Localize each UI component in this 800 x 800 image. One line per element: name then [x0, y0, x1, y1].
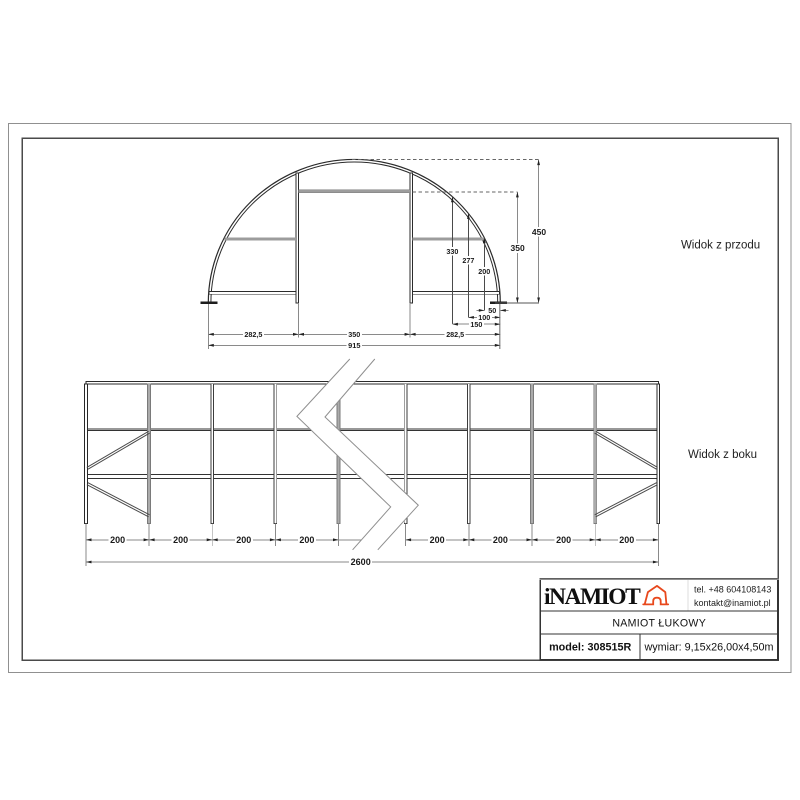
svg-text:282,5: 282,5 — [244, 330, 262, 339]
svg-text:200: 200 — [430, 535, 445, 545]
svg-text:2600: 2600 — [351, 557, 371, 567]
svg-text:tel. +48 604108143: tel. +48 604108143 — [694, 585, 771, 595]
svg-text:Widok z przodu: Widok z przodu — [681, 240, 760, 252]
svg-text:200: 200 — [493, 535, 508, 545]
svg-text:200: 200 — [173, 535, 188, 545]
svg-text:200: 200 — [478, 267, 490, 276]
svg-text:Widok z boku: Widok z boku — [688, 449, 757, 461]
svg-text:277: 277 — [462, 256, 474, 265]
svg-text:200: 200 — [556, 535, 571, 545]
svg-text:150: 150 — [470, 320, 482, 329]
svg-text:282,5: 282,5 — [446, 330, 464, 339]
svg-text:200: 200 — [236, 535, 251, 545]
svg-text:200: 200 — [299, 535, 314, 545]
svg-text:NAMIOT ŁUKOWY: NAMIOT ŁUKOWY — [612, 618, 706, 630]
svg-text:350: 350 — [348, 330, 360, 339]
svg-text:350: 350 — [511, 243, 525, 253]
svg-text:wymiar: 9,15x26,00x4,50m: wymiar: 9,15x26,00x4,50m — [643, 642, 773, 654]
svg-text:450: 450 — [532, 227, 546, 237]
svg-text:200: 200 — [619, 535, 634, 545]
svg-text:915: 915 — [348, 341, 360, 350]
svg-text:kontakt@inamiot.pl: kontakt@inamiot.pl — [694, 598, 771, 608]
svg-text:330: 330 — [446, 247, 458, 256]
svg-text:200: 200 — [110, 535, 125, 545]
svg-text:model: 308515R: model: 308515R — [549, 642, 631, 654]
svg-text:iNAMIOT: iNAMIOT — [544, 584, 641, 610]
